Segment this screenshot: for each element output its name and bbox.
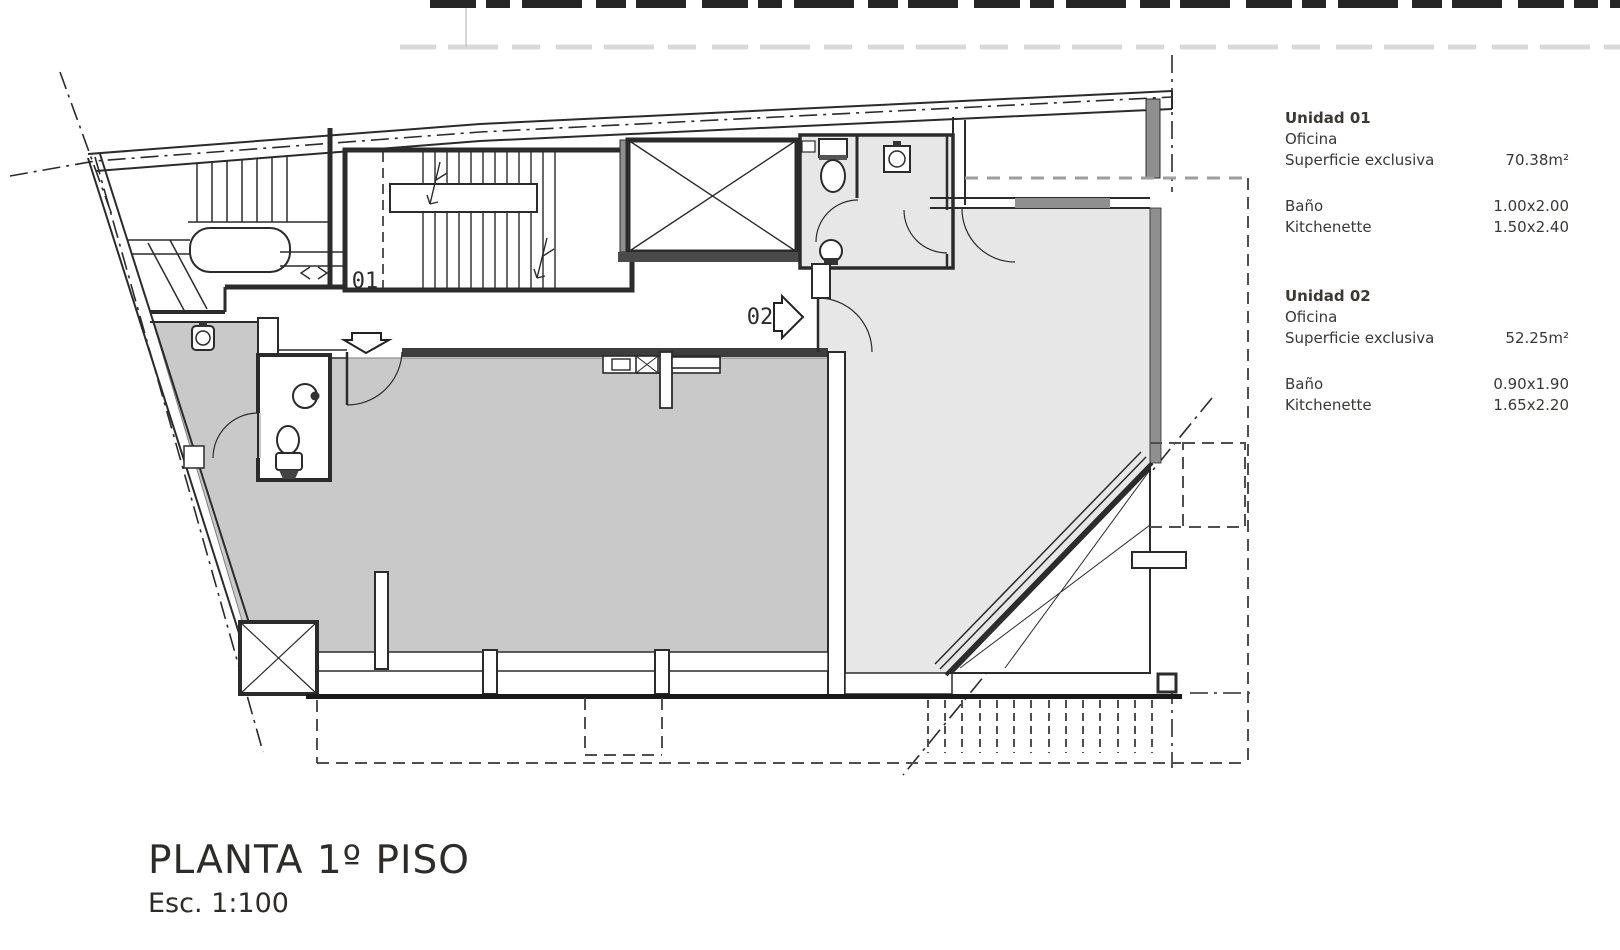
entry-label-01: 01 <box>352 269 379 294</box>
east-wall-opening <box>1132 552 1186 568</box>
unit-01-info: Unidad 01 Oficina Superficie exclusiva 7… <box>1285 108 1569 238</box>
unit-kitchen-row: Kitchenette 1.50x2.40 <box>1285 217 1569 238</box>
unit01-kitchenette <box>192 322 214 350</box>
wall-pier-bottom-1 <box>375 572 388 669</box>
toilet-symbol-unit01 <box>276 426 302 479</box>
unit-bath-row: Baño 1.00x2.00 <box>1285 196 1569 217</box>
kitchen-value: 1.50x2.40 <box>1493 217 1569 238</box>
staircase-1 <box>128 128 348 312</box>
kitchen-label: Kitchenette <box>1285 217 1372 238</box>
bottomleft-x-box <box>240 622 317 694</box>
dashed-comb <box>928 700 1152 753</box>
surface-value: 52.25m² <box>1505 328 1569 349</box>
window-mullion-2 <box>655 650 669 694</box>
wall-pier-corridor <box>258 318 278 355</box>
toilet-symbol-unit02 <box>819 139 847 192</box>
unit-info-panel: Unidad 01 Oficina Superficie exclusiva 7… <box>1285 0 1569 440</box>
sink-symbol-unit01-kitchen <box>192 322 214 350</box>
sink-symbol-unit02-kitchen <box>884 141 910 172</box>
surface-label: Superficie exclusiva <box>1285 150 1434 171</box>
unit-divider-wall <box>828 352 845 697</box>
left-wall-jog <box>184 446 204 468</box>
entry-label-02: 02 <box>747 305 774 330</box>
recess-bar <box>672 357 720 368</box>
wall-pier-topright <box>1146 99 1160 178</box>
page-title: PLANTA 1º PISO <box>148 838 470 883</box>
surface-label: Superficie exclusiva <box>1285 328 1434 349</box>
unit-surface-row: Superficie exclusiva 52.25m² <box>1285 328 1569 349</box>
unit-bath-row: Baño 0.90x1.90 <box>1285 374 1569 395</box>
elevator-bottom-wall <box>618 252 808 262</box>
recess-box <box>612 359 630 370</box>
kitchen-value: 1.65x2.20 <box>1493 395 1569 416</box>
unit02-entry-wall-stub <box>812 264 830 298</box>
vent-box <box>802 141 815 152</box>
bath-value: 0.90x1.90 <box>1493 374 1569 395</box>
property-line-topleft-diagonal <box>60 72 112 215</box>
unit-use: Oficina <box>1285 307 1569 328</box>
kitchen-label: Kitchenette <box>1285 395 1372 416</box>
window-mullion-1 <box>483 650 497 694</box>
entry-arrow-01-icon <box>344 333 389 353</box>
unit02-east-wall <box>1150 208 1161 463</box>
bath-label: Baño <box>1285 196 1323 217</box>
partition-stub-wall <box>660 352 672 408</box>
unit-kitchen-row: Kitchenette 1.65x2.20 <box>1285 395 1569 416</box>
exterior-bottom-wall <box>306 694 1182 699</box>
floorplan-sheet: 01 02 Unidad 01 Oficina Superficie exclu… <box>0 0 1620 950</box>
unit-02-info: Unidad 02 Oficina Superficie exclusiva 5… <box>1285 286 1569 416</box>
entry-arrow-02-icon <box>774 296 803 338</box>
plan-scale: Esc. 1:100 <box>148 888 470 919</box>
corner-column <box>1158 674 1176 692</box>
unit-name: Unidad 02 <box>1285 286 1569 307</box>
title-block: PLANTA 1º PISO Esc. 1:100 <box>148 838 470 919</box>
projection-box-bottom <box>585 698 662 755</box>
stair-landing-rail <box>390 184 537 212</box>
elevator-shaft <box>618 140 808 262</box>
window-band-top <box>1015 198 1110 208</box>
surface-value: 70.38m² <box>1505 150 1569 171</box>
unit02-service-block <box>800 135 953 268</box>
projection-box-right <box>1183 443 1245 527</box>
unit-name: Unidad 01 <box>1285 108 1569 129</box>
bath-value: 1.00x2.00 <box>1493 196 1569 217</box>
unit01-floor <box>153 322 828 652</box>
unit-use: Oficina <box>1285 129 1569 150</box>
staircase-2 <box>345 150 632 290</box>
bath-label: Baño <box>1285 374 1323 395</box>
unit-surface-row: Superficie exclusiva 70.38m² <box>1285 150 1569 171</box>
